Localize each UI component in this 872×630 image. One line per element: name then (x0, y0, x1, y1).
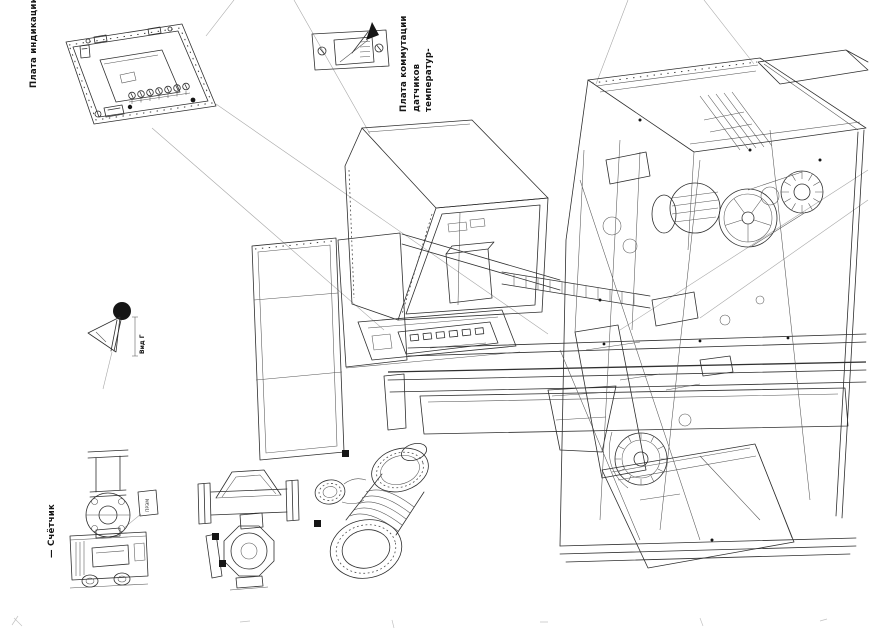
indicator-panel-lid (66, 24, 216, 124)
cable-chain (502, 272, 650, 308)
motor (652, 183, 720, 233)
ribbed-disc (748, 171, 823, 246)
electromagnetic-flowmeter (313, 440, 434, 584)
control-cabinet (345, 120, 548, 320)
flow-counter-unit (70, 450, 158, 588)
commutation-board-label-line2: датчиков (411, 8, 424, 112)
spoked-pulley (719, 187, 779, 247)
flanged-flow-sensor (198, 470, 299, 590)
side-enclosure-panels (252, 233, 407, 460)
machine-frame-assembly (560, 50, 868, 568)
sensor-view-label: Вид Г (137, 320, 150, 354)
leader-lines (103, 0, 868, 528)
commutation-board-label-line3: температур- (423, 8, 436, 112)
commutation-board-label-line1: Плата коммутации (398, 8, 411, 112)
exploded-view-drawing (0, 0, 872, 630)
discharge-chute (548, 386, 616, 452)
fan-impeller (609, 432, 667, 488)
drawing-page: Плата индикации Плата коммутации датчико… (0, 0, 872, 630)
temperature-sensor-commutation-board (312, 22, 389, 70)
level-sensor-with-knob (88, 302, 138, 356)
scan-artifacts (12, 616, 827, 628)
indicator-panel-label: Плата индикации (28, 2, 41, 88)
terminal-screw-row (129, 83, 190, 104)
flow-counter-label: — Счётчик (46, 496, 59, 558)
device-tag-label: ПРЭМ (143, 490, 156, 512)
commutation-board-label: Плата коммутации датчиков температур- (398, 8, 436, 112)
